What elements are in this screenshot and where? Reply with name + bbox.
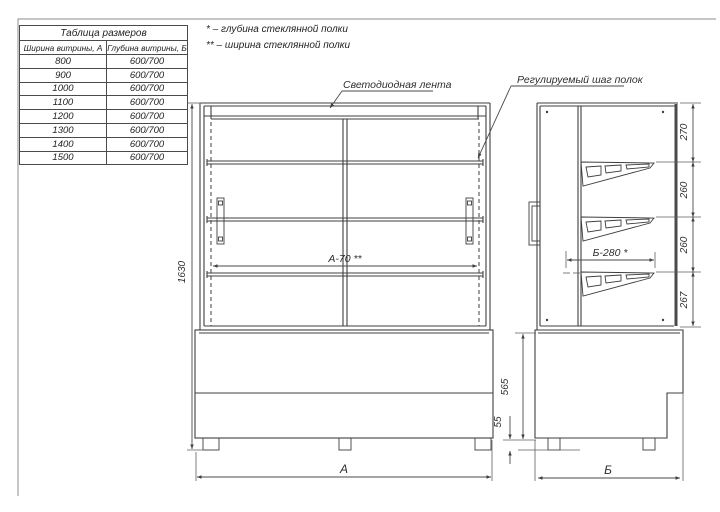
shelf-bracket-3 (581, 272, 654, 296)
side-view (529, 103, 683, 450)
front-view (195, 103, 493, 450)
led-strip-band (204, 106, 486, 119)
table-row: 1100600/700 (20, 96, 188, 110)
dim-width-a: А (339, 462, 348, 476)
callout-shelf-pitch: Регулируемый шаг полок (517, 74, 644, 86)
dim-base-height: 565 (500, 378, 511, 395)
col-header-width: Ширина витрины, А (20, 41, 107, 55)
size-table: Таблица размеров Ширина витрины, А Глуби… (19, 25, 187, 165)
cell-depth: 600/700 (107, 110, 188, 124)
drawing-sheet: Светодиодная лента Регулируемый шаг поло… (0, 0, 720, 512)
dimension-lines (192, 104, 693, 478)
glass-shelf-1 (207, 159, 483, 166)
note-shelf-width: ** – ширина стеклянной полки (206, 38, 350, 54)
front-base (195, 330, 493, 438)
front-glass-edge (675, 104, 678, 326)
callout-leaders (330, 86, 624, 158)
note-shelf-depth: * – глубина стеклянной полки (206, 22, 350, 38)
cell-width: 1400 (20, 137, 107, 151)
dim-total-height: 1630 (177, 260, 188, 283)
size-table-title: Таблица размеров (20, 26, 188, 41)
dim-depth-b: Б (604, 463, 612, 477)
side-feet (548, 438, 655, 450)
table-row: 1300600/700 (20, 123, 188, 137)
callout-led-strip: Светодиодная лента (343, 79, 452, 91)
dim-spacing-2: 260 (679, 181, 690, 199)
dim-inner-width: А-70 ** (327, 253, 362, 265)
cell-depth: 600/700 (107, 68, 188, 82)
table-row: 1200600/700 (20, 110, 188, 124)
cell-width: 900 (20, 68, 107, 82)
dim-spacing-4: 267 (679, 291, 690, 309)
table-row: 900600/700 (20, 68, 188, 82)
dim-shelf-depth: Б-280 * (593, 247, 629, 259)
center-divider (343, 119, 347, 326)
dim-spacing-3: 260 (679, 236, 690, 254)
table-row: 1400600/700 (20, 137, 188, 151)
table-row: 1000600/700 (20, 82, 188, 96)
side-base (535, 330, 683, 438)
dim-leg-height: 55 (493, 416, 504, 428)
extension-lines (187, 103, 701, 481)
cell-depth: 600/700 (107, 55, 188, 69)
glass-shelf-3 (207, 271, 483, 278)
col-header-depth: Глубина витрины, Б (107, 41, 188, 55)
cell-depth: 600/700 (107, 96, 188, 110)
side-handle (529, 202, 540, 245)
cell-depth: 600/700 (107, 123, 188, 137)
pitch-callout-leader (478, 86, 511, 158)
shelf-standards (211, 122, 479, 326)
cell-width: 1100 (20, 96, 107, 110)
cell-width: 800 (20, 55, 107, 69)
footnotes: * – глубина стеклянной полки ** – ширина… (206, 22, 350, 53)
front-feet (203, 438, 491, 450)
cell-depth: 600/700 (107, 151, 188, 165)
shelf-bracket-1 (581, 162, 654, 186)
dim-spacing-top: 270 (679, 123, 690, 141)
cell-depth: 600/700 (107, 82, 188, 96)
cell-width: 1500 (20, 151, 107, 165)
cell-width: 1000 (20, 82, 107, 96)
shelf-bracket-2 (581, 217, 654, 241)
cell-width: 1300 (20, 123, 107, 137)
cell-width: 1200 (20, 110, 107, 124)
size-table-grid: Таблица размеров Ширина витрины, А Глуби… (19, 25, 188, 165)
cell-depth: 600/700 (107, 137, 188, 151)
table-row: 800600/700 (20, 55, 188, 69)
glass-shelf-2 (207, 216, 483, 223)
table-row: 1500600/700 (20, 151, 188, 165)
